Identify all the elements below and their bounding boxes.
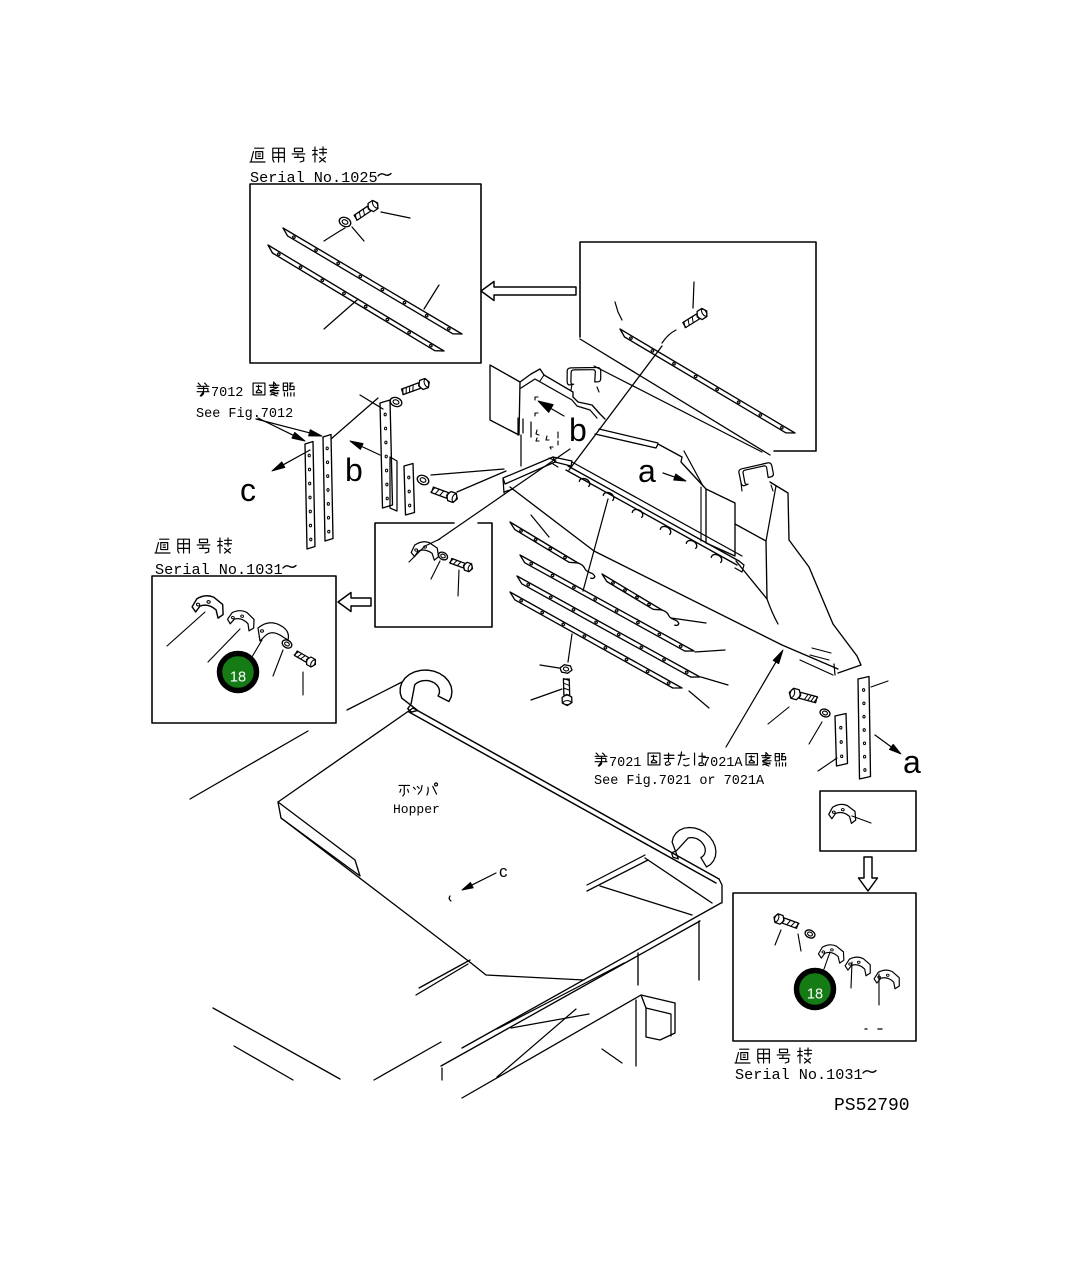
svg-text:18: 18	[230, 670, 246, 686]
svg-text:c: c	[499, 862, 508, 881]
svg-text:PS52790: PS52790	[834, 1096, 910, 1116]
svg-text:See Fig.7012: See Fig.7012	[196, 407, 293, 422]
svg-text:a: a	[903, 744, 921, 780]
svg-text:Serial No.1031: Serial No.1031	[735, 1066, 863, 1084]
svg-text:b: b	[345, 452, 363, 488]
svg-text:Hopper: Hopper	[393, 802, 440, 817]
svg-text:See Fig.7021 or 7021A: See Fig.7021 or 7021A	[594, 774, 765, 789]
svg-text:a: a	[638, 453, 656, 489]
svg-text:c: c	[240, 472, 256, 508]
svg-text:7021: 7021	[609, 756, 641, 771]
svg-text:7012: 7012	[211, 386, 243, 401]
svg-text:18: 18	[807, 987, 823, 1003]
svg-text:b: b	[569, 412, 587, 448]
svg-text:7021A: 7021A	[702, 756, 743, 771]
